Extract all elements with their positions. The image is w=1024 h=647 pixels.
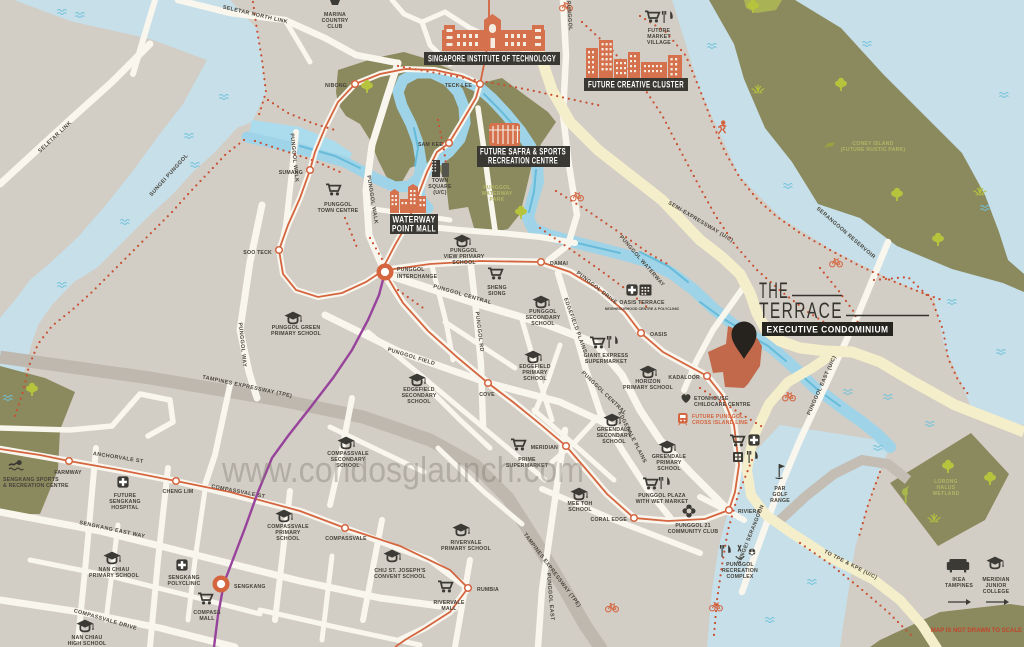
svg-text:OASIS: OASIS xyxy=(650,332,667,338)
svg-text:DAMAI: DAMAI xyxy=(550,261,568,267)
svg-text:TECK LEE: TECK LEE xyxy=(445,83,473,89)
svg-text:SENGKANG: SENGKANG xyxy=(234,584,266,590)
svg-text:PRIMARY SCHOOL: PRIMARY SCHOOL xyxy=(89,573,140,579)
svg-text:WETLAND: WETLAND xyxy=(932,491,959,497)
svg-text:MALL: MALL xyxy=(441,606,457,612)
svg-text:SCHOOL: SCHOOL xyxy=(657,466,681,472)
svg-text:COLLEGE: COLLEGE xyxy=(983,589,1010,595)
svg-text:PRIMARY SCHOOL: PRIMARY SCHOOL xyxy=(271,331,322,337)
svg-text:OASIS TERRACE: OASIS TERRACE xyxy=(619,300,665,306)
svg-text:RECREATION CENTRE: RECREATION CENTRE xyxy=(488,156,558,167)
svg-text:TAMPINES: TAMPINES xyxy=(945,583,973,589)
svg-text:(FUTURE RUSTIC PARK): (FUTURE RUSTIC PARK) xyxy=(841,147,906,153)
svg-text:RUMBIA: RUMBIA xyxy=(477,587,499,593)
svg-text:SCHOOL: SCHOOL xyxy=(568,507,592,513)
svg-text:PRIMARY SCHOOL: PRIMARY SCHOOL xyxy=(623,385,674,391)
svg-text:KADALOOR: KADALOOR xyxy=(668,375,700,381)
svg-text:& RECREATION CENTRE: & RECREATION CENTRE xyxy=(3,483,69,489)
svg-text:PRIMARY SCHOOL: PRIMARY SCHOOL xyxy=(441,546,492,552)
svg-text:COVE: COVE xyxy=(479,392,495,398)
svg-text:MAP IS NOT DRAWN TO SCALE: MAP IS NOT DRAWN TO SCALE xyxy=(931,628,1022,634)
svg-text:SAM KEE: SAM KEE xyxy=(418,142,443,148)
svg-text:SCHOOL: SCHOOL xyxy=(407,399,431,405)
svg-text:(U/C): (U/C) xyxy=(433,190,446,196)
svg-text:PARK: PARK xyxy=(490,197,505,203)
svg-text:CHILDCARE CENTRE: CHILDCARE CENTRE xyxy=(694,402,751,408)
svg-text:SCHOOL: SCHOOL xyxy=(602,439,626,445)
svg-text:POINT MALL: POINT MALL xyxy=(392,224,436,235)
svg-text:POLYCLINIC: POLYCLINIC xyxy=(168,581,201,587)
svg-text:CLUB: CLUB xyxy=(327,24,342,30)
svg-text:INTERCHANGE: INTERCHANGE xyxy=(397,274,438,280)
svg-text:HIGH SCHOOL: HIGH SCHOOL xyxy=(68,641,107,647)
svg-text:NIBONG: NIBONG xyxy=(325,83,347,89)
svg-text:VILLAGE: VILLAGE xyxy=(647,40,671,46)
svg-text:MALL: MALL xyxy=(199,616,215,622)
svg-text:PUNGGOL: PUNGGOL xyxy=(397,267,425,273)
svg-text:SCHOOL: SCHOOL xyxy=(531,321,555,327)
svg-text:RANGE: RANGE xyxy=(770,498,790,504)
svg-text:SOO TECK: SOO TECK xyxy=(243,250,272,256)
svg-text:EXECUTIVE CONDOMINIUM: EXECUTIVE CONDOMINIUM xyxy=(767,325,889,336)
svg-text:SINGAPORE INSTITUTE OF TECHNOL: SINGAPORE INSTITUTE OF TECHNOLOGY xyxy=(428,54,556,65)
svg-text:CORAL EDGE: CORAL EDGE xyxy=(591,517,628,523)
svg-text:SIONG: SIONG xyxy=(488,291,506,297)
svg-text:COMPASSVALE: COMPASSVALE xyxy=(325,536,367,542)
svg-text:CROSS ISLAND LINE: CROSS ISLAND LINE xyxy=(692,420,748,426)
svg-text:SCHOOL: SCHOOL xyxy=(452,260,476,266)
svg-text:HOSPITAL: HOSPITAL xyxy=(111,505,139,511)
svg-text:SCHOOL: SCHOOL xyxy=(523,376,547,382)
svg-text:CONVENT SCHOOL: CONVENT SCHOOL xyxy=(374,574,426,580)
svg-text:TOWN CENTRE: TOWN CENTRE xyxy=(318,208,359,214)
svg-text:SCHOOL: SCHOOL xyxy=(276,536,300,542)
svg-text:WITH WET MARKET: WITH WET MARKET xyxy=(636,499,689,505)
svg-text:www.condosglaunch.com: www.condosglaunch.com xyxy=(221,449,584,490)
svg-text:TERRACE: TERRACE xyxy=(759,298,843,323)
svg-text:SUPERMARKET: SUPERMARKET xyxy=(585,359,628,365)
svg-text:COMPLEX: COMPLEX xyxy=(726,574,753,580)
svg-text:COMMUNITY CLUB: COMMUNITY CLUB xyxy=(668,529,719,535)
svg-text:FUTURE CREATIVE CLUSTER: FUTURE CREATIVE CLUSTER xyxy=(588,80,684,91)
svg-text:NEIGHBOURHOOD CENTRE & POLYCLI: NEIGHBOURHOOD CENTRE & POLYCLINIC xyxy=(605,307,680,311)
svg-text:CHENG LIM: CHENG LIM xyxy=(163,489,194,495)
svg-text:FARMWAY: FARMWAY xyxy=(54,470,82,476)
